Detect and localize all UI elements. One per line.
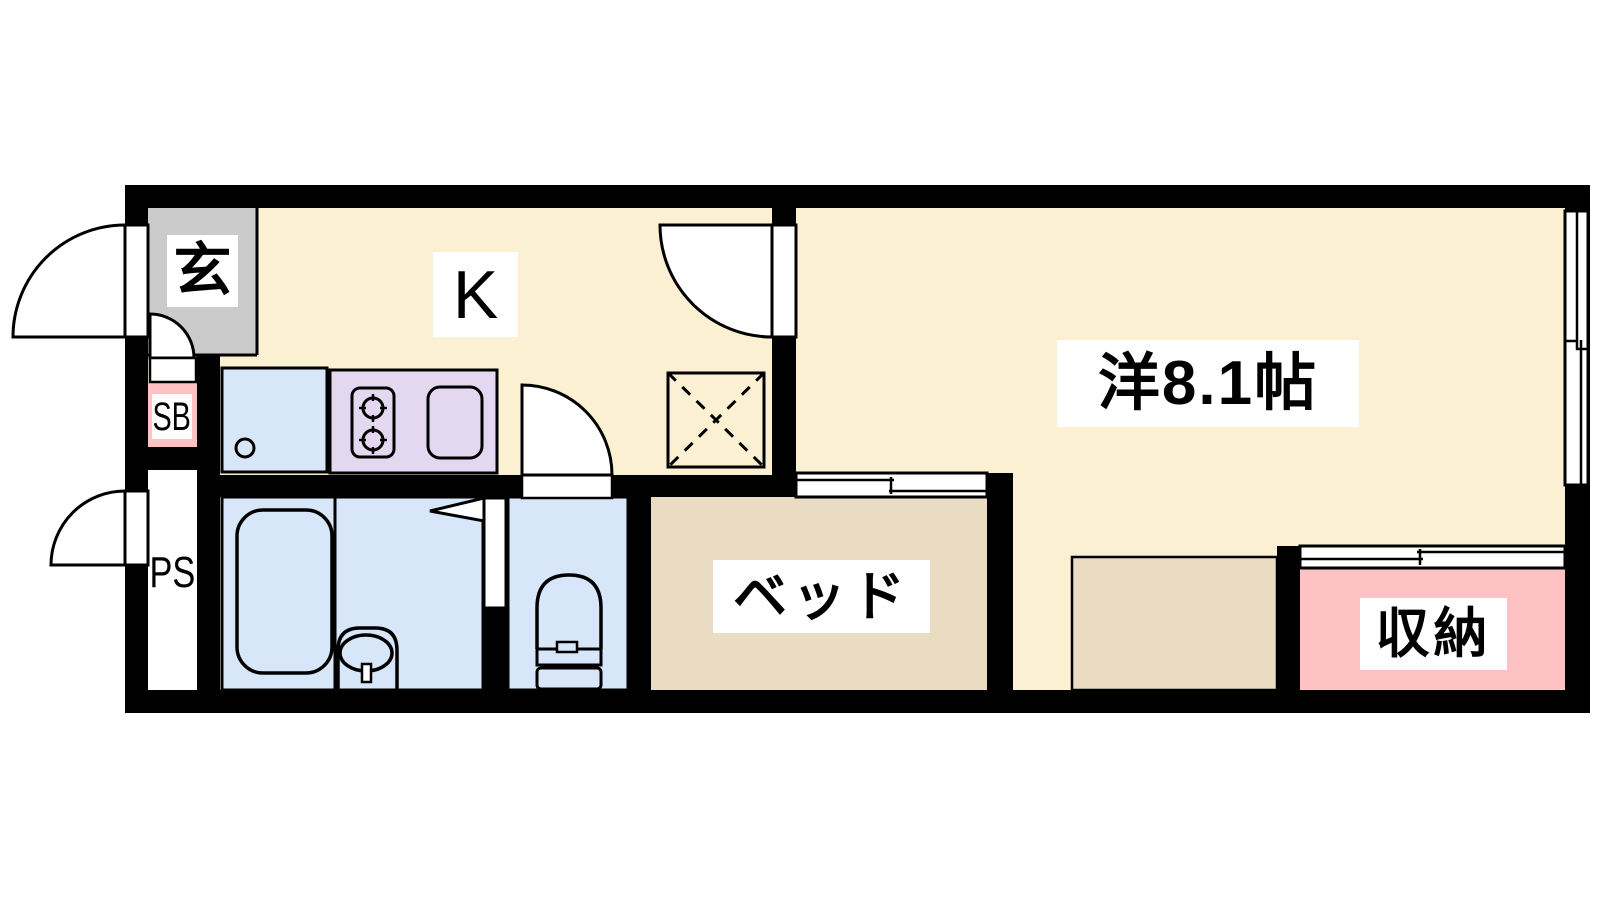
- gas-stove: [330, 370, 497, 473]
- pipe-space-door-swing: [51, 491, 148, 565]
- toilet-room: [508, 497, 628, 690]
- storage-sliding-door: [1300, 546, 1565, 568]
- bed-label: ベッド: [713, 560, 930, 633]
- storage-label: 収納: [1360, 598, 1507, 670]
- pipe-space-label: PS: [146, 548, 199, 598]
- entrance-door-swing: [13, 225, 148, 337]
- bathroom-area: [222, 497, 483, 690]
- sliding-window: [1565, 211, 1588, 485]
- western-room-label: 洋8.1帖: [1057, 340, 1359, 427]
- floorplan-drawing: [0, 0, 1600, 900]
- kitchen-label: K: [433, 252, 518, 337]
- kitchen-sink: [222, 368, 327, 472]
- bed-sliding-door: [796, 473, 987, 497]
- pipe-space-label-text: PS: [150, 551, 196, 595]
- shoe-box-label: SB: [152, 394, 192, 439]
- bed-platform: [1072, 557, 1277, 690]
- entrance-label: 玄: [167, 235, 238, 307]
- floorplan-canvas: 玄 K 洋8.1帖 ベッド 収納 SB PS: [0, 0, 1600, 900]
- shoe-box-label-text: SB: [153, 397, 191, 437]
